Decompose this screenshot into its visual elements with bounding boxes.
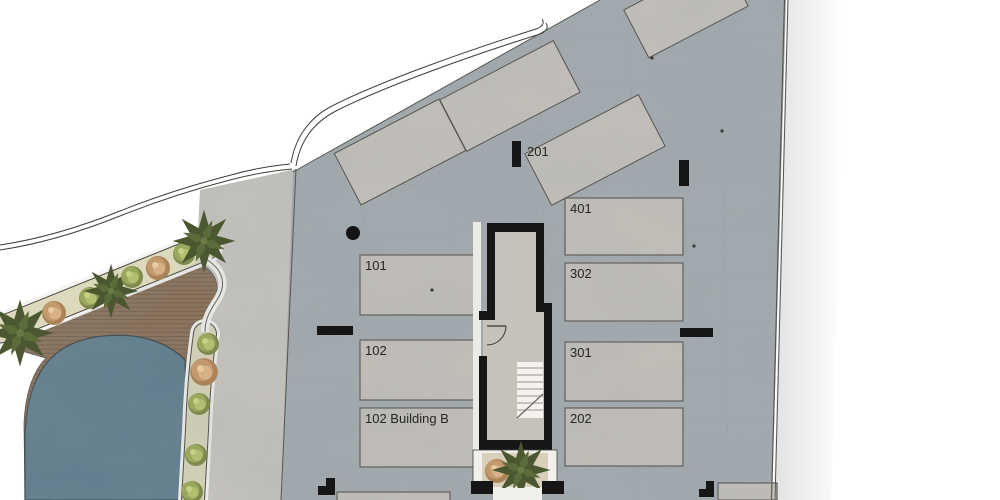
bush-green-icon (121, 266, 143, 288)
wall-segment-marker (679, 160, 689, 186)
label-102-building-b: 102 Building B (365, 411, 449, 426)
bush-green-icon (197, 333, 219, 355)
bush-green-icon (188, 393, 210, 415)
partial-room-bottom-right (718, 483, 777, 500)
label-202: 202 (570, 411, 592, 426)
stair-wall-top (487, 223, 544, 232)
rooms-left-column (360, 255, 475, 467)
partial-room-bottom-left (337, 492, 450, 500)
stair-wall-right-upper (536, 223, 544, 311)
stair-foot-right (542, 481, 564, 494)
stair-foot-left (471, 481, 493, 494)
bush-tan-icon (190, 358, 218, 386)
palm-icon (173, 210, 236, 273)
stair-wall-right-lower (544, 303, 552, 448)
label-102: 102 (365, 343, 387, 358)
wall-segment-marker (680, 328, 713, 337)
stair-treads (517, 362, 543, 418)
bush-tan-icon (146, 256, 170, 280)
stair-wall-left-upper (487, 223, 495, 318)
column-dot-marker (346, 226, 360, 240)
label-302: 302 (570, 266, 592, 281)
stair-wall-bottom (479, 440, 552, 450)
bush-green-icon (185, 444, 207, 466)
label-101: 101 (365, 258, 387, 273)
site-plan-screenshot: 201 101 102 102 Building B 401 302 301 2… (0, 0, 1000, 500)
entry-threshold (493, 488, 542, 500)
stair-wall-left-jog (479, 311, 495, 320)
wall-segment-marker (317, 326, 353, 335)
stair-wall-left-lower (479, 356, 487, 448)
wall-segment-marker-201 (512, 141, 521, 167)
bush-tan-icon (42, 301, 66, 325)
label-301: 301 (570, 345, 592, 360)
stair-upper-floor (490, 228, 541, 323)
label-201: 201 (527, 144, 549, 159)
label-401: 401 (570, 201, 592, 216)
site-plan-canvas: 201 101 102 102 Building B 401 302 301 2… (0, 0, 1000, 500)
